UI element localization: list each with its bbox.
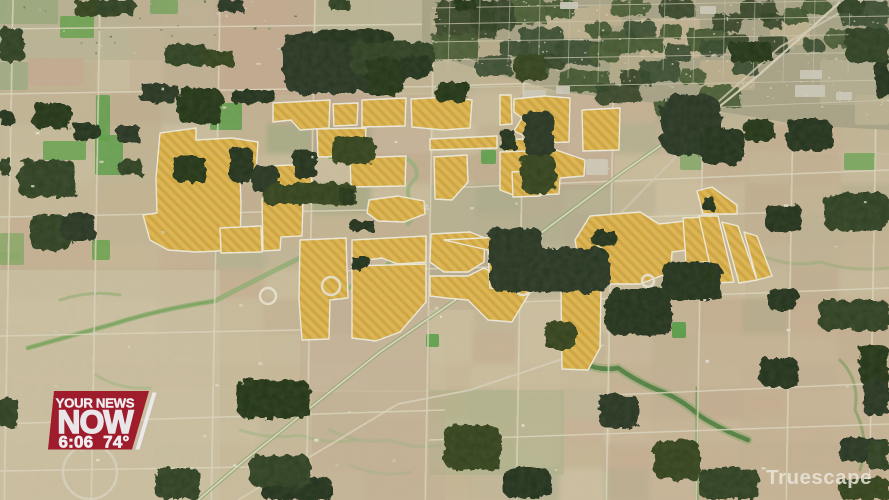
svg-text:6:06 74°: 6:06 74° — [59, 433, 130, 452]
svg-text:Truescape: Truescape — [766, 466, 872, 489]
